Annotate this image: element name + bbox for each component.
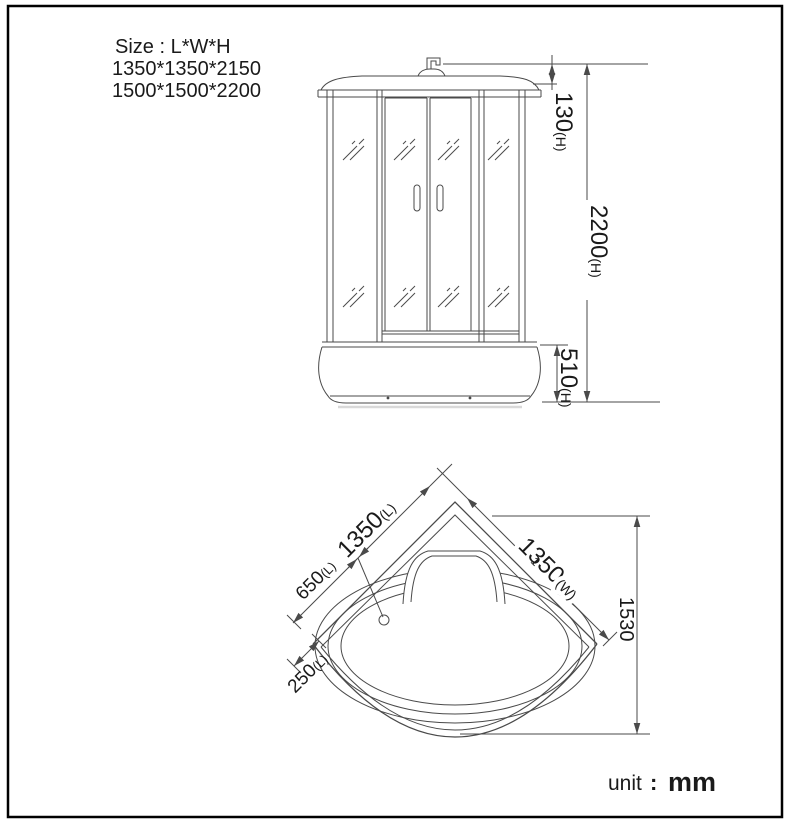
unit-label: unit (608, 772, 642, 795)
front-view: 130(H) 2200(H) 510(H) (318, 55, 660, 407)
frame-and-panels (327, 90, 525, 342)
canopy-dome (321, 76, 539, 90)
size-heading: Size : L*W*H (115, 36, 231, 58)
dim-cap-height-label: 130(H) (550, 92, 577, 151)
page-border (8, 6, 782, 817)
dim-length-label: 1350(L) (332, 494, 401, 563)
door-handle-right (437, 185, 443, 211)
plan-view: 1350(L) 650(L) 250(L) 1350(W) 1 1530 (284, 464, 650, 737)
dim-width-label: 1350(W) (513, 532, 586, 605)
size-option-2: 1500*1500*2200 (112, 80, 261, 102)
unit-value: mm (668, 767, 716, 797)
shower-tray (319, 342, 541, 407)
shower-enclosure-technical-drawing: Size : L*W*H 1350*1350*2150 1500*1500*22… (0, 0, 790, 824)
size-title-block: Size : L*W*H 1350*1350*2150 1500*1500*22… (112, 36, 261, 102)
size-option-1: 1350*1350*2150 (112, 58, 261, 80)
unit-note: unit : mm (608, 767, 716, 797)
dim-seat-offset-label: 650(L) (292, 556, 341, 605)
front-view-dimensions: 130(H) 2200(H) 510(H) (443, 55, 660, 407)
drain-hole (379, 615, 389, 625)
dim-diagonal-label: 1530 (615, 597, 637, 642)
drawing-page: Size : L*W*H 1350*1350*2150 1500*1500*22… (0, 0, 790, 824)
roof-fixture (418, 58, 445, 76)
door-handle-left (414, 185, 420, 211)
dim-tray-height-label: 510(H) (555, 348, 582, 407)
dim-corner-offset-label: 250(L) (284, 649, 333, 698)
tub-seat (403, 551, 505, 604)
unit-colon: : (650, 770, 657, 795)
dim-total-height-label: 2200(H) (585, 205, 612, 278)
